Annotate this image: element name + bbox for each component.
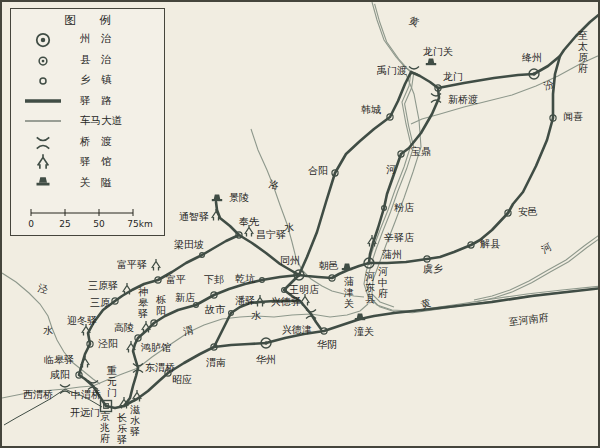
- label-hedongxian: 河东县: [365, 271, 376, 304]
- place-label: 阳: [156, 305, 166, 316]
- place-label: 高陵: [114, 322, 134, 333]
- road-yumen-crossing: [411, 72, 438, 88]
- legend-label: 车马大道: [80, 114, 122, 128]
- place-shengaoyi: 神皋驿: [138, 286, 150, 333]
- place-label: 华阴: [317, 339, 337, 350]
- prefecture-icon: [20, 29, 66, 49]
- place-label: 通智驿: [179, 211, 209, 222]
- place-yumendu: 禹门渡: [377, 65, 419, 76]
- place-label: 迎冬驿: [67, 315, 97, 326]
- label-kaiyuanmen: 开远门: [70, 407, 100, 418]
- place-label: 安邑: [518, 206, 538, 217]
- place-label: 开远门: [70, 407, 100, 418]
- place-label: 富平: [166, 274, 186, 285]
- place-zhongweiqiao: 中渭桥: [71, 381, 101, 401]
- place-label: 水: [43, 325, 53, 336]
- legend-label: 州 治: [80, 32, 112, 46]
- place-changleyi: 长乐驿: [117, 397, 128, 445]
- place-gaoling: 高陵: [114, 322, 141, 341]
- house-icon: [301, 294, 310, 306]
- cart-sample-icon: [20, 111, 66, 131]
- place-label: 朝邑: [319, 260, 339, 271]
- legend-item-5: 桥 渡: [11, 132, 164, 153]
- place-label: 乐: [117, 423, 127, 434]
- place-label: 绛州: [522, 52, 542, 63]
- label-hezhongfu: 河中府: [378, 266, 388, 299]
- place-label: 乾坑: [235, 273, 255, 284]
- place-xianyang: 咸阳: [50, 369, 82, 380]
- place-label: 蒲: [344, 276, 354, 287]
- road-sample-icon: [20, 91, 66, 111]
- legend-item-6: 驿 馆: [11, 152, 164, 173]
- legend-item-0: 州 治: [11, 29, 164, 50]
- place-label: 宝鼎: [411, 146, 431, 157]
- place-label: 河: [378, 266, 388, 277]
- place-label: 元: [107, 376, 117, 387]
- place-label: 粉店: [394, 202, 414, 213]
- place-label: 昭应: [172, 374, 192, 385]
- place-label: 滋: [130, 404, 140, 415]
- place-label: 闻喜: [563, 111, 583, 122]
- place-label: 京: [100, 411, 110, 422]
- place-label: 中渭桥: [71, 389, 101, 400]
- place-label: 新桥渡: [448, 94, 478, 105]
- place-label: 河: [539, 241, 553, 256]
- place-label: 县: [365, 293, 376, 304]
- place-label: 洛: [268, 178, 281, 191]
- label-shui-wei: 水: [251, 310, 261, 321]
- place-label: 禹门渡: [377, 65, 407, 76]
- place-label: 韩城: [361, 104, 381, 115]
- place-label: 西渭桥: [23, 389, 53, 400]
- road-fengxian-jingling: [216, 202, 239, 235]
- place-label: 渭南: [206, 357, 226, 368]
- place-label: 中: [378, 277, 388, 288]
- legend-label: 桥 渡: [80, 135, 112, 149]
- label-shui-jing: 水: [43, 325, 53, 336]
- place-label: 富平驿: [117, 259, 147, 270]
- place-label: 重: [106, 365, 117, 376]
- pass-icon: [355, 314, 365, 321]
- place-label: 水: [284, 222, 294, 233]
- place-label: 昌宁驿: [256, 229, 286, 240]
- place-label: 龙门: [443, 71, 463, 82]
- place-label: 潘驿: [235, 295, 255, 306]
- label-zhi-henanfu: 至河南府: [508, 312, 549, 328]
- place-label: 长: [117, 412, 127, 423]
- label-zhi-taiyuanfu: 至太原府: [578, 30, 588, 74]
- place-label: 渭: [182, 324, 195, 337]
- place-label: 河: [365, 271, 375, 282]
- label-he-east: 河: [539, 241, 553, 256]
- pass-icon: [342, 264, 352, 271]
- place-label: 故市: [204, 304, 226, 315]
- place-label: 虞乡: [423, 263, 443, 274]
- scale-tick-label: 0: [28, 219, 34, 229]
- label-he-mid: 河: [386, 164, 396, 175]
- place-zishuiyi: 滋水驿: [130, 390, 141, 437]
- place-xiagui: 下邽: [204, 274, 224, 298]
- place-label: 驿: [138, 308, 148, 319]
- scale-tick-label: 25: [59, 219, 70, 229]
- legend-title: 图 例: [17, 13, 164, 28]
- place-label: 府: [100, 433, 110, 444]
- place-fendian: 粉店: [382, 202, 414, 213]
- place-label: 华州: [256, 354, 276, 365]
- place-label: 河: [386, 164, 396, 175]
- place-label: 神: [138, 286, 148, 297]
- place-qiankeng: 乾坑: [235, 273, 264, 284]
- label-chongyuanmen: 重元门: [106, 365, 117, 398]
- place-tongzhiyi: 通智驿: [179, 209, 220, 222]
- place-sanyuanyi: 三原驿: [88, 280, 131, 295]
- place-label: 泾阳: [98, 338, 118, 349]
- scale: 0255075km: [19, 206, 169, 234]
- place-label: 原: [578, 52, 588, 63]
- legend-item-2: 乡 镇: [11, 70, 164, 91]
- place-label: 龙门关: [423, 46, 453, 57]
- place-wenxi: 闻喜: [550, 111, 583, 122]
- legend-item-1: 县 治: [11, 50, 164, 71]
- town-icon: [20, 70, 66, 90]
- place-jingling: 景陵: [212, 192, 249, 203]
- scale-tick-label: 50: [93, 219, 105, 229]
- place-label: 王明店: [288, 284, 319, 295]
- legend-item-3: 驿 路: [11, 91, 164, 112]
- pass-icon: [20, 173, 66, 193]
- legend-item-7: 关 隘: [11, 173, 164, 194]
- bridge-icon: [20, 132, 66, 152]
- label-jing: 泾: [37, 282, 50, 295]
- place-jingyang: 泾阳: [87, 338, 118, 349]
- place-label: 关: [344, 298, 354, 309]
- label-wei: 渭: [182, 324, 195, 337]
- legend-label: 驿 路: [80, 94, 112, 108]
- place-label: 蒲州: [382, 249, 402, 260]
- place-label: 合阳: [308, 165, 328, 176]
- place-label: 新店: [175, 292, 195, 303]
- pass-icon: [212, 195, 222, 202]
- place-label: 府: [378, 288, 388, 299]
- place-label: 梁田坡: [174, 239, 204, 250]
- place-label: 景陵: [229, 192, 249, 203]
- place-gushi: 故市: [204, 304, 233, 315]
- legend-label: 乡 镇: [80, 73, 112, 87]
- label-huang-top: 黄: [408, 15, 421, 29]
- place-label: 驿: [117, 434, 127, 445]
- place-label: 临皋驿: [44, 354, 74, 365]
- place-yingdongyi: 迎冬驿: [67, 315, 97, 336]
- map-page: 京兆府长乐驿滋水驿开远门重元门中渭桥西渭桥东渭桥咸阳临皋驿泾阳迎冬驿三原三原驿富…: [0, 0, 600, 448]
- legend-item-4: 车马大道: [11, 111, 164, 132]
- place-xiweiqiao: 西渭桥: [23, 385, 70, 401]
- label-luo: 洛: [268, 178, 281, 191]
- place-label: 咸阳: [50, 369, 70, 380]
- place-label: 鸿胪馆: [140, 342, 171, 353]
- legend-label: 县 治: [80, 53, 112, 67]
- place-label: 泾: [37, 282, 50, 295]
- place-label: 津: [343, 287, 354, 298]
- place-label: 潼关: [354, 326, 374, 337]
- place-label: 府: [578, 63, 588, 74]
- pass-icon: [426, 59, 436, 66]
- place-label: 太: [578, 41, 588, 52]
- place-liangtianpo: 梁田坡: [174, 239, 204, 257]
- place-changningyi: 昌宁驿: [245, 225, 286, 240]
- place-longmenguan: 龙门关: [423, 46, 453, 65]
- label-shui-luo: 水: [284, 222, 294, 233]
- place-label: 解县: [480, 238, 501, 249]
- legend-label: 关 隘: [80, 176, 112, 190]
- scale-tick-label: 75km: [127, 219, 152, 229]
- place-label: 至河南府: [508, 312, 549, 328]
- place-fupingyi: 富平驿: [117, 259, 160, 271]
- place-label: 驿: [130, 426, 140, 437]
- place-label: 辛驿店: [384, 232, 414, 243]
- house-icon: [20, 152, 66, 172]
- place-label: 黄: [408, 15, 421, 29]
- place-label: 至: [578, 30, 588, 41]
- place-baoding: 宝鼎: [398, 146, 431, 157]
- place-honglvguan: 鸿胪馆: [127, 341, 171, 353]
- place-label: 皋: [138, 297, 149, 308]
- place-label: 门: [107, 387, 117, 398]
- place-label: 下邽: [204, 274, 224, 285]
- scale-bar: 0255075km: [19, 206, 169, 230]
- place-label: 兴德驿: [271, 296, 301, 307]
- house-icon: [152, 259, 161, 271]
- legend-items: 州 治县 治乡 镇驿 路车马大道桥 渡驿 馆关 隘: [11, 29, 164, 193]
- place-label: 三原: [90, 297, 110, 308]
- place-label: 三原驿: [88, 280, 118, 291]
- place-label: 兴德津: [282, 324, 312, 335]
- place-label: 水: [130, 415, 140, 426]
- legend: 图 例 州 治县 治乡 镇驿 路车马大道桥 渡驿 馆关 隘 0255075km: [10, 8, 165, 236]
- place-label: 栎: [155, 294, 166, 305]
- legend-label: 驿 馆: [80, 155, 112, 169]
- county-icon: [20, 50, 66, 70]
- place-label: 同州: [280, 255, 300, 266]
- place-label: 东: [365, 282, 375, 293]
- place-label: 水: [251, 310, 261, 321]
- place-label: 兆: [100, 422, 110, 433]
